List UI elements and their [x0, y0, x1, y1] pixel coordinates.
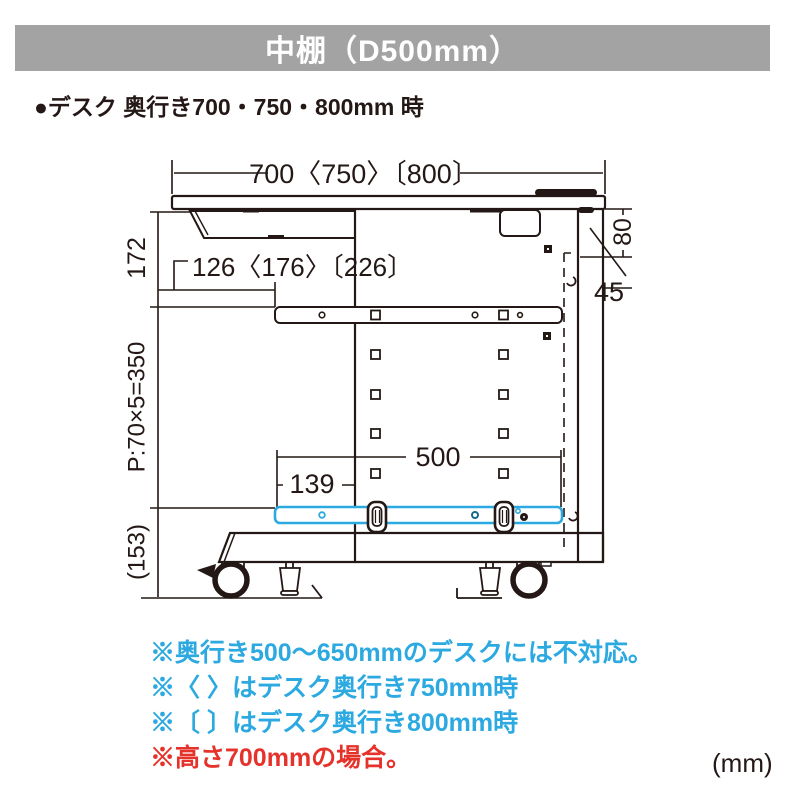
note-depth-incompatible: ※奥行き500～650mmのデスクには不対応。	[150, 636, 653, 671]
shelf-clamp-left	[368, 502, 386, 532]
dim-rear-offset: 80	[609, 218, 637, 246]
footnotes: ※奥行き500～650mmのデスクには不対応。 ※〈 〉はデスク奥行き750mm…	[150, 636, 653, 776]
tray-tab-2	[268, 235, 284, 239]
shelf-hole-1	[319, 512, 325, 518]
rail-slot-2	[499, 311, 508, 320]
caster-left	[197, 562, 247, 596]
note-square-brackets-800: ※〔 〕はデスク奥行き800mm時	[150, 706, 653, 741]
dim-pitch: P:70×5=350	[124, 342, 151, 473]
leveler-left	[280, 562, 300, 595]
panel-curl-2	[569, 512, 578, 521]
rail-hole-1	[319, 312, 325, 318]
leveler-right	[480, 562, 500, 595]
middle-shelf-highlighted	[275, 502, 562, 532]
under-desk-tray	[190, 211, 355, 238]
rail-hole-3	[518, 313, 523, 318]
note-angle-brackets-750: ※〈 〉はデスク奥行き750mm時	[150, 671, 653, 706]
rear-top-cap	[578, 207, 594, 213]
rail-hole-2	[472, 312, 478, 318]
unit-label: (mm)	[712, 748, 773, 779]
panel-curl-1	[567, 277, 576, 286]
dim-tray-inset: 126〈176〉〔226〕	[192, 252, 413, 282]
tray-dim-leader	[174, 261, 188, 290]
base-beam	[219, 533, 603, 562]
dim-upper-height: 172	[123, 237, 151, 279]
dim-top-width: 700〈750〉〔800〕	[249, 159, 479, 189]
caster-brake-lever	[197, 564, 216, 578]
caster-right	[513, 562, 551, 596]
cable-duct-top	[535, 189, 597, 196]
rail-slot-1	[371, 311, 380, 320]
rear-hook-bracket	[500, 210, 540, 236]
dim-shelf-front-gap: 139	[289, 469, 334, 499]
casters-and-feet	[197, 562, 551, 598]
dim-lower-height: (153)	[124, 524, 151, 580]
shelf-hole-3	[516, 509, 520, 513]
desk-top	[172, 196, 605, 209]
dim-shelf-depth: 500	[415, 442, 460, 472]
shelf-clamp-right	[495, 502, 513, 532]
shelf-hole-2	[472, 512, 478, 518]
note-height-700: ※高さ700mmの場合。	[150, 741, 653, 776]
dim-hook-size: 45	[594, 277, 624, 307]
tray-tab-1	[243, 209, 259, 213]
panel-dashed-centerline	[564, 253, 571, 550]
floor-bracket-left	[312, 585, 322, 598]
